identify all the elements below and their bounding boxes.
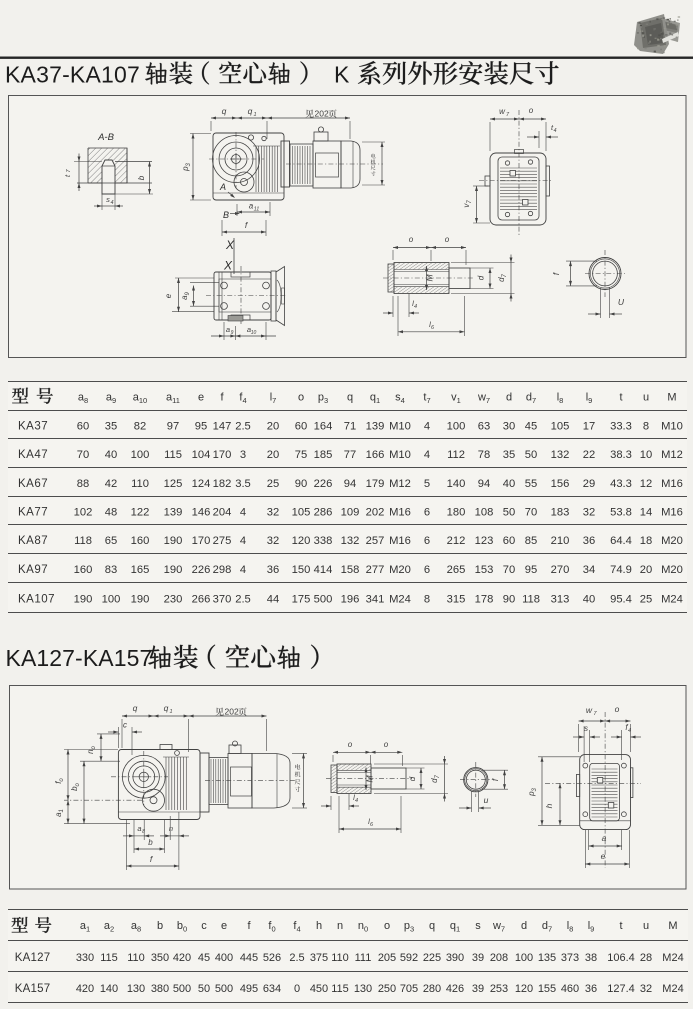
svg-text:X: X — [225, 238, 235, 252]
svg-text:8: 8 — [424, 593, 430, 605]
svg-text:u: u — [643, 920, 649, 932]
svg-text:112: 112 — [447, 449, 465, 461]
svg-text:60: 60 — [503, 535, 515, 547]
svg-text:77: 77 — [344, 449, 356, 461]
svg-text:270: 270 — [551, 564, 570, 576]
svg-text:8: 8 — [142, 829, 145, 835]
svg-text:370: 370 — [213, 593, 232, 605]
svg-text:100: 100 — [447, 420, 466, 432]
svg-text:KA107: KA107 — [18, 593, 55, 605]
svg-text:257: 257 — [366, 535, 385, 547]
svg-text:d: d — [477, 275, 486, 280]
svg-text:120: 120 — [515, 983, 533, 995]
svg-text:182: 182 — [213, 478, 232, 490]
svg-text:4: 4 — [424, 449, 430, 461]
svg-text:B: B — [223, 210, 229, 220]
svg-text:b: b — [157, 920, 163, 932]
svg-text:38: 38 — [585, 952, 597, 964]
svg-text:146: 146 — [192, 506, 211, 518]
svg-text:40: 40 — [583, 593, 595, 605]
svg-text:225: 225 — [423, 952, 441, 964]
svg-text:o: o — [445, 235, 450, 244]
svg-text:111: 111 — [355, 952, 372, 964]
svg-text:495: 495 — [240, 983, 258, 995]
svg-text:d: d — [408, 776, 417, 781]
svg-text:M: M — [425, 274, 435, 282]
svg-text:70: 70 — [525, 506, 537, 518]
svg-text:78: 78 — [478, 449, 490, 461]
svg-text:500: 500 — [215, 983, 233, 995]
svg-text:M20: M20 — [389, 564, 411, 576]
svg-text:122: 122 — [131, 506, 150, 518]
svg-text:338: 338 — [314, 535, 333, 547]
svg-text:A: A — [219, 182, 226, 192]
svg-text:110: 110 — [331, 952, 349, 964]
svg-text:n: n — [169, 824, 173, 833]
svg-text:420: 420 — [76, 983, 94, 995]
svg-text:33.3: 33.3 — [610, 420, 632, 432]
svg-text:341: 341 — [366, 593, 385, 605]
svg-text:75: 75 — [295, 449, 307, 461]
svg-text:M: M — [667, 391, 676, 403]
svg-text:175: 175 — [292, 593, 311, 605]
svg-text:M16: M16 — [389, 506, 411, 518]
svg-text:135: 135 — [538, 952, 556, 964]
svg-text:226: 226 — [314, 478, 333, 490]
svg-text:32: 32 — [640, 983, 652, 995]
svg-text:0: 0 — [294, 983, 300, 995]
svg-text:153: 153 — [475, 564, 494, 576]
svg-text:118: 118 — [522, 593, 540, 605]
svg-text:147: 147 — [213, 420, 232, 432]
svg-text:X: X — [223, 259, 233, 273]
svg-text:526: 526 — [263, 952, 281, 964]
svg-text:110: 110 — [131, 478, 149, 490]
svg-text:48: 48 — [105, 506, 117, 518]
svg-text:o: o — [409, 235, 414, 244]
svg-text:35: 35 — [503, 449, 515, 461]
svg-text:8: 8 — [643, 420, 649, 432]
svg-text:32: 32 — [583, 506, 595, 518]
svg-text:c: c — [123, 721, 127, 730]
svg-text:e: e — [221, 920, 227, 932]
svg-text:313: 313 — [551, 593, 570, 605]
svg-text:e: e — [164, 293, 173, 298]
svg-text:32: 32 — [267, 535, 279, 547]
svg-text:KA87: KA87 — [18, 535, 48, 547]
svg-text:74.9: 74.9 — [610, 564, 632, 576]
svg-text:230: 230 — [164, 593, 183, 605]
svg-text:634: 634 — [263, 983, 281, 995]
svg-text:4: 4 — [240, 506, 246, 518]
svg-text:178: 178 — [475, 593, 494, 605]
svg-text:d: d — [521, 920, 527, 932]
svg-text:204: 204 — [213, 506, 232, 518]
svg-text:180: 180 — [447, 506, 466, 518]
svg-text:105: 105 — [551, 420, 570, 432]
svg-text:a: a — [602, 833, 607, 843]
svg-text:A-B: A-B — [97, 132, 115, 143]
svg-text:3: 3 — [240, 449, 246, 461]
svg-text:100: 100 — [131, 449, 150, 461]
svg-text:350: 350 — [151, 952, 169, 964]
svg-text:90: 90 — [295, 478, 307, 490]
svg-text:71: 71 — [344, 420, 356, 432]
svg-text:445: 445 — [240, 952, 258, 964]
svg-text:u: u — [484, 795, 489, 805]
svg-text:190: 190 — [164, 564, 183, 576]
svg-text:KA157: KA157 — [15, 983, 51, 995]
svg-text:70: 70 — [77, 449, 89, 461]
svg-text:t: t — [619, 391, 622, 403]
svg-text:s: s — [475, 920, 481, 932]
svg-text:KA127-KA157: KA127-KA157 — [6, 645, 153, 671]
svg-text:275: 275 — [213, 535, 232, 547]
svg-text:140: 140 — [447, 478, 466, 490]
svg-text:a: a — [137, 824, 141, 833]
svg-text:164: 164 — [314, 420, 333, 432]
svg-text:53.8: 53.8 — [610, 506, 632, 518]
svg-text:212: 212 — [447, 535, 466, 547]
svg-text:e: e — [198, 391, 204, 403]
svg-text:202: 202 — [366, 506, 385, 518]
svg-text:210: 210 — [551, 535, 570, 547]
svg-text:M: M — [365, 775, 375, 783]
svg-text:183: 183 — [551, 506, 570, 518]
svg-text:85: 85 — [525, 535, 537, 547]
svg-text:o: o — [384, 920, 390, 932]
svg-text:28: 28 — [640, 952, 652, 964]
svg-text:118: 118 — [74, 535, 92, 547]
svg-text:44: 44 — [267, 593, 279, 605]
svg-text:M12: M12 — [389, 478, 411, 490]
svg-text:202: 202 — [315, 109, 329, 119]
svg-text:95.4: 95.4 — [610, 593, 632, 605]
svg-text:s: s — [584, 724, 588, 733]
svg-text:25: 25 — [640, 593, 652, 605]
svg-text:450: 450 — [310, 983, 328, 995]
svg-text:M16: M16 — [389, 535, 411, 547]
svg-text:55: 55 — [525, 478, 537, 490]
svg-text:36: 36 — [583, 535, 595, 547]
svg-text:h: h — [316, 920, 322, 932]
svg-text:97: 97 — [167, 420, 179, 432]
svg-text:30: 30 — [503, 420, 515, 432]
svg-text:190: 190 — [74, 593, 93, 605]
svg-text:34: 34 — [583, 564, 595, 576]
svg-text:U: U — [618, 297, 625, 307]
svg-text:17: 17 — [583, 420, 595, 432]
svg-text:60: 60 — [77, 420, 89, 432]
svg-text:w: w — [586, 705, 593, 715]
svg-text:94: 94 — [478, 478, 490, 490]
svg-text:170: 170 — [213, 449, 232, 461]
svg-text:M16: M16 — [661, 506, 683, 518]
svg-text:4: 4 — [553, 128, 556, 134]
svg-text:12: 12 — [640, 478, 652, 490]
svg-text:KA67: KA67 — [18, 478, 48, 490]
svg-text:130: 130 — [354, 983, 372, 995]
svg-text:40: 40 — [105, 449, 117, 461]
svg-text:500: 500 — [314, 593, 333, 605]
svg-text:6: 6 — [424, 564, 430, 576]
svg-text:39: 39 — [472, 983, 484, 995]
svg-text:20: 20 — [267, 420, 279, 432]
svg-text:286: 286 — [314, 506, 333, 518]
svg-text:10: 10 — [640, 449, 652, 461]
svg-text:140: 140 — [100, 983, 118, 995]
svg-text:4: 4 — [424, 420, 430, 432]
svg-text:20: 20 — [640, 564, 652, 576]
svg-text:108: 108 — [475, 506, 494, 518]
svg-text:4: 4 — [240, 564, 246, 576]
svg-text:160: 160 — [74, 564, 93, 576]
svg-text:315: 315 — [447, 593, 466, 605]
svg-text:40: 40 — [503, 478, 515, 490]
svg-text:4: 4 — [414, 304, 417, 310]
svg-text:250: 250 — [378, 983, 396, 995]
svg-text:20: 20 — [267, 449, 279, 461]
svg-text:115: 115 — [164, 449, 182, 461]
svg-text:4: 4 — [240, 535, 246, 547]
svg-text:115: 115 — [331, 983, 349, 995]
svg-text:t: t — [619, 920, 622, 932]
svg-text:45: 45 — [198, 952, 210, 964]
svg-text:9: 9 — [231, 330, 234, 336]
svg-text:65: 65 — [105, 535, 117, 547]
svg-text:4: 4 — [110, 200, 113, 206]
svg-text:KA47: KA47 — [18, 449, 48, 461]
svg-text:5: 5 — [424, 478, 430, 490]
svg-text:160: 160 — [131, 535, 150, 547]
svg-text:95: 95 — [525, 564, 537, 576]
svg-text:127.4: 127.4 — [607, 983, 635, 995]
svg-text:35: 35 — [105, 420, 117, 432]
svg-text:63: 63 — [478, 420, 490, 432]
svg-text:460: 460 — [561, 983, 579, 995]
svg-text:o: o — [529, 106, 534, 115]
svg-text:45: 45 — [525, 420, 537, 432]
svg-text:106.4: 106.4 — [607, 952, 635, 964]
svg-text:M: M — [668, 920, 677, 932]
svg-text:280: 280 — [423, 983, 441, 995]
svg-text:190: 190 — [164, 535, 183, 547]
svg-text:253: 253 — [490, 983, 508, 995]
svg-text:266: 266 — [192, 593, 211, 605]
svg-text:10: 10 — [251, 330, 257, 336]
svg-text:4: 4 — [355, 798, 358, 804]
svg-text:390: 390 — [446, 952, 464, 964]
svg-text:6: 6 — [424, 506, 430, 518]
svg-text:q: q — [133, 703, 138, 713]
svg-text:d: d — [506, 391, 512, 403]
svg-text:29: 29 — [583, 478, 595, 490]
svg-text:123: 123 — [475, 535, 494, 547]
svg-text:b: b — [148, 838, 153, 847]
svg-text:60: 60 — [295, 420, 307, 432]
svg-text:1: 1 — [169, 709, 172, 715]
svg-text:50: 50 — [525, 449, 537, 461]
svg-text:158: 158 — [341, 564, 360, 576]
svg-text:KA127: KA127 — [15, 952, 51, 964]
svg-text:M10: M10 — [389, 449, 411, 461]
svg-text:102: 102 — [74, 506, 93, 518]
svg-text:b: b — [137, 175, 146, 180]
svg-text:375: 375 — [310, 952, 328, 964]
svg-text:KA37-KA107: KA37-KA107 — [5, 62, 140, 88]
svg-text:1: 1 — [253, 112, 256, 118]
svg-text:o: o — [384, 740, 389, 749]
svg-text:a: a — [226, 325, 230, 334]
svg-text:50: 50 — [503, 506, 515, 518]
svg-text:22: 22 — [583, 449, 595, 461]
svg-text:330: 330 — [76, 952, 94, 964]
svg-text:196: 196 — [341, 593, 360, 605]
svg-text:156: 156 — [551, 478, 570, 490]
svg-text:170: 170 — [192, 535, 211, 547]
svg-text:q: q — [164, 703, 169, 713]
svg-text:95: 95 — [195, 420, 207, 432]
svg-text:165: 165 — [131, 564, 150, 576]
svg-text:o: o — [348, 740, 353, 749]
svg-text:4: 4 — [628, 728, 631, 734]
svg-text:q: q — [222, 106, 227, 116]
svg-text:14: 14 — [640, 506, 652, 518]
svg-text:190: 190 — [131, 593, 150, 605]
svg-text:83: 83 — [105, 564, 117, 576]
svg-text:265: 265 — [447, 564, 466, 576]
svg-text:132: 132 — [551, 449, 570, 461]
svg-text:414: 414 — [314, 564, 333, 576]
svg-text:150: 150 — [292, 564, 311, 576]
svg-text:139: 139 — [164, 506, 183, 518]
svg-text:226: 226 — [192, 564, 211, 576]
svg-text:426: 426 — [446, 983, 464, 995]
svg-text:43.3: 43.3 — [610, 478, 632, 490]
svg-text:202: 202 — [225, 707, 239, 717]
svg-text:115: 115 — [100, 952, 118, 964]
svg-text:50: 50 — [198, 983, 210, 995]
svg-text:M24: M24 — [662, 952, 683, 964]
svg-text:277: 277 — [366, 564, 385, 576]
svg-text:42: 42 — [105, 478, 117, 490]
svg-text:38.3: 38.3 — [610, 449, 632, 461]
svg-text:e: e — [601, 851, 606, 861]
svg-text:q: q — [248, 106, 253, 116]
svg-text:36: 36 — [585, 983, 597, 995]
svg-text:500: 500 — [173, 983, 191, 995]
svg-text:39: 39 — [472, 952, 484, 964]
svg-text:M20: M20 — [661, 564, 683, 576]
svg-text:o: o — [615, 704, 620, 714]
svg-text:h: h — [544, 803, 554, 808]
svg-text:400: 400 — [215, 952, 233, 964]
svg-text:3.5: 3.5 — [235, 478, 251, 490]
svg-text:o: o — [298, 391, 304, 403]
svg-text:q: q — [429, 920, 435, 932]
svg-text:M12: M12 — [661, 449, 683, 461]
svg-text:132: 132 — [341, 535, 360, 547]
svg-text:100: 100 — [102, 593, 121, 605]
svg-text:298: 298 — [213, 564, 232, 576]
svg-text:185: 185 — [314, 449, 333, 461]
svg-text:36: 36 — [267, 564, 279, 576]
svg-text:11: 11 — [254, 207, 260, 213]
svg-text:M10: M10 — [389, 420, 411, 432]
svg-text:82: 82 — [134, 420, 146, 432]
svg-text:70: 70 — [503, 564, 515, 576]
svg-text:124: 124 — [192, 478, 211, 490]
svg-text:420: 420 — [173, 952, 191, 964]
svg-text:M10: M10 — [661, 420, 683, 432]
svg-text:208: 208 — [490, 952, 508, 964]
svg-text:110: 110 — [127, 952, 145, 964]
svg-text:n: n — [337, 920, 343, 932]
svg-text:M24: M24 — [389, 593, 411, 605]
svg-text:q: q — [347, 391, 353, 403]
svg-text:2.5: 2.5 — [289, 952, 304, 964]
svg-text:179: 179 — [366, 478, 385, 490]
svg-text:K: K — [334, 62, 350, 88]
svg-text:64.4: 64.4 — [610, 535, 632, 547]
svg-text:KA77: KA77 — [18, 506, 48, 518]
svg-text:32: 32 — [267, 506, 279, 518]
svg-text:125: 125 — [164, 478, 183, 490]
svg-text:KA97: KA97 — [18, 564, 48, 576]
svg-text:139: 139 — [366, 420, 385, 432]
svg-text:592: 592 — [400, 952, 418, 964]
svg-text:94: 94 — [344, 478, 356, 490]
svg-text:KA37: KA37 — [18, 420, 48, 432]
svg-text:205: 205 — [378, 952, 396, 964]
svg-text:130: 130 — [127, 983, 145, 995]
svg-text:373: 373 — [561, 952, 579, 964]
svg-text:25: 25 — [267, 478, 279, 490]
svg-text:c: c — [201, 920, 207, 932]
svg-text:M24: M24 — [662, 983, 683, 995]
svg-text:109: 109 — [341, 506, 360, 518]
svg-text:90: 90 — [503, 593, 515, 605]
svg-text:6: 6 — [424, 535, 430, 547]
svg-text:105: 105 — [292, 506, 311, 518]
svg-text:18: 18 — [640, 535, 652, 547]
svg-text:M24: M24 — [661, 593, 683, 605]
svg-text:M20: M20 — [661, 535, 683, 547]
svg-text:u: u — [643, 391, 649, 403]
svg-text:155: 155 — [538, 983, 556, 995]
svg-text:104: 104 — [192, 449, 211, 461]
svg-text:120: 120 — [292, 535, 311, 547]
svg-text:166: 166 — [366, 449, 385, 461]
svg-text:M16: M16 — [661, 478, 683, 490]
svg-text:100: 100 — [515, 952, 533, 964]
svg-text:380: 380 — [151, 983, 169, 995]
svg-text:2.5: 2.5 — [235, 420, 251, 432]
svg-text:705: 705 — [400, 983, 418, 995]
svg-text:88: 88 — [77, 478, 89, 490]
svg-text:2.5: 2.5 — [235, 593, 251, 605]
